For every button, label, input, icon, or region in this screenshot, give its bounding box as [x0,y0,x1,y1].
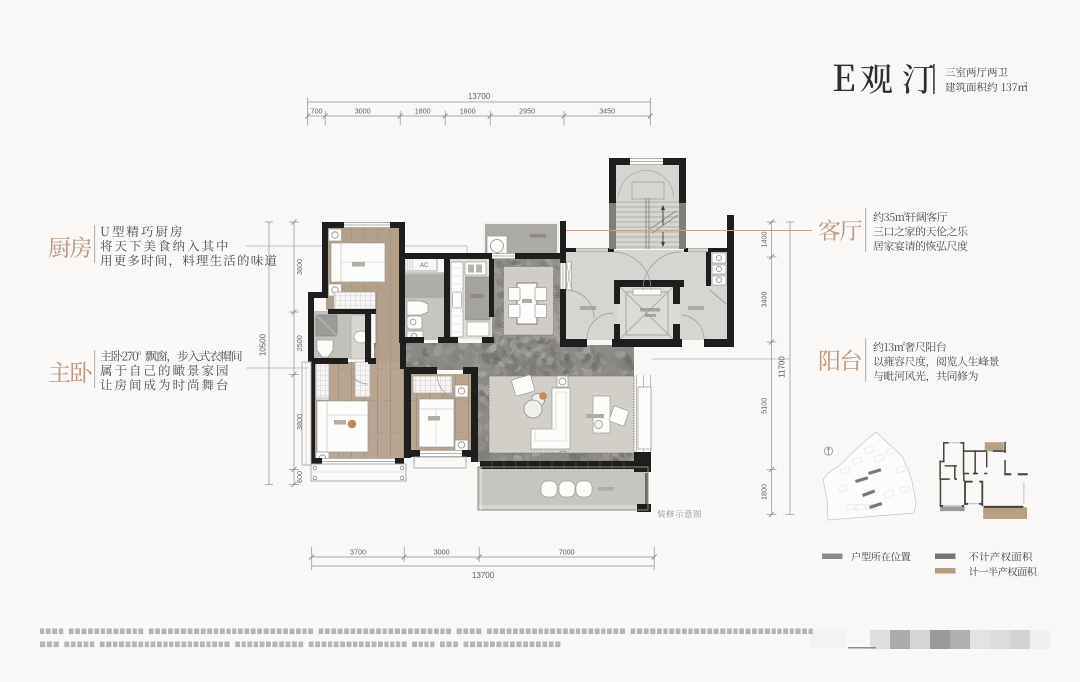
svg-text:3000: 3000 [355,107,371,116]
svg-text:2950: 2950 [519,107,535,116]
svg-text:3450: 3450 [599,107,615,116]
svg-text:AC: AC [420,263,429,269]
svg-text:7000: 7000 [559,548,575,557]
svg-text:11700: 11700 [778,356,787,378]
svg-text:3600: 3600 [295,259,304,275]
svg-text:5100: 5100 [760,398,769,414]
svg-text:3000: 3000 [434,548,450,557]
svg-text:3800: 3800 [295,414,304,430]
svg-text:1800: 1800 [460,107,476,116]
svg-text:1400: 1400 [760,232,769,248]
svg-text:700: 700 [311,107,323,116]
svg-text:600: 600 [295,471,304,483]
svg-text:1800: 1800 [760,484,769,500]
svg-text:3700: 3700 [350,548,366,557]
svg-text:2500: 2500 [295,335,304,351]
svg-text:3400: 3400 [760,292,769,308]
svg-text:13700: 13700 [468,92,491,101]
svg-text:10500: 10500 [259,333,268,356]
svg-text:13700: 13700 [472,571,495,580]
svg-text:1800: 1800 [415,107,431,116]
